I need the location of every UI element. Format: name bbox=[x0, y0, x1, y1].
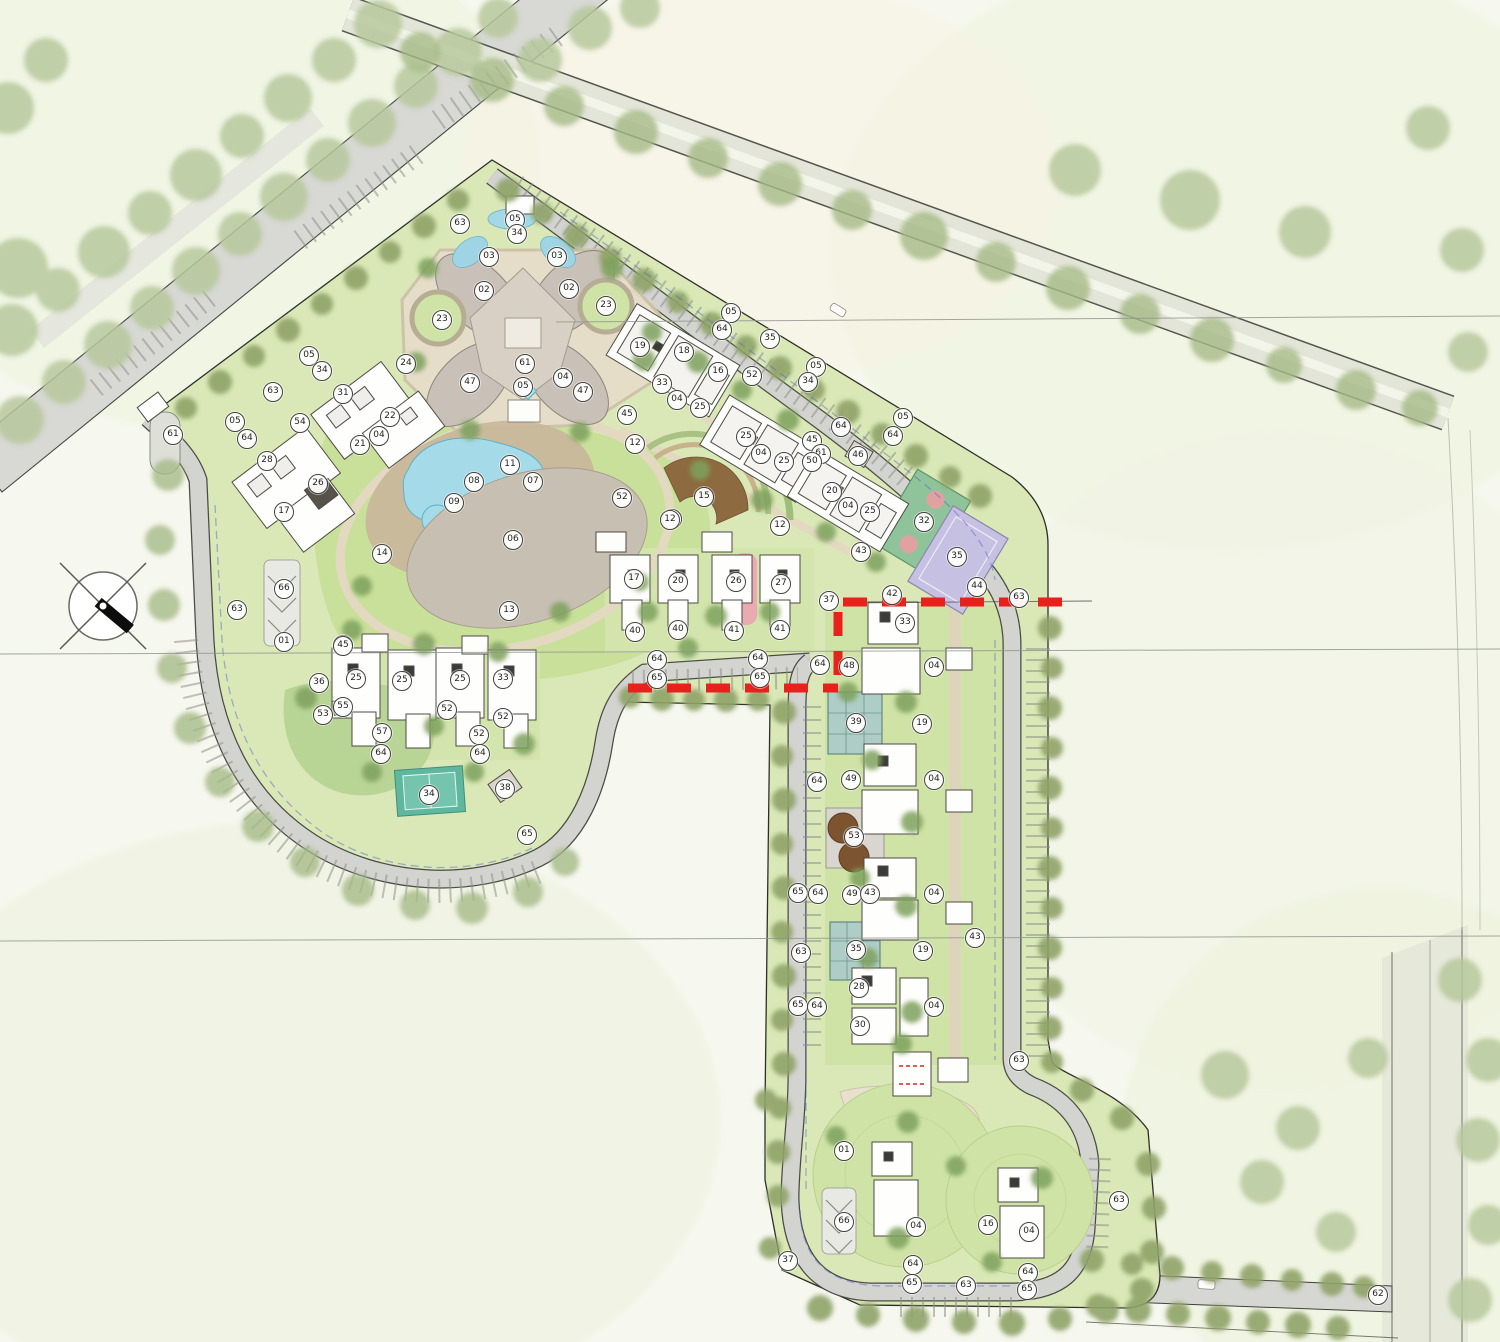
gatehouse bbox=[893, 1052, 931, 1096]
entry-median-west bbox=[264, 560, 300, 646]
entry-median-south bbox=[822, 1188, 856, 1254]
circular-plaza bbox=[412, 292, 464, 344]
pavilion bbox=[332, 699, 350, 716]
site-plan-canvas: 6305340303020223232461050447472221043154… bbox=[0, 0, 1500, 1342]
tennis-court bbox=[394, 766, 465, 817]
north-arrow-icon bbox=[60, 563, 146, 649]
site-plan-drawing bbox=[0, 0, 1500, 1342]
